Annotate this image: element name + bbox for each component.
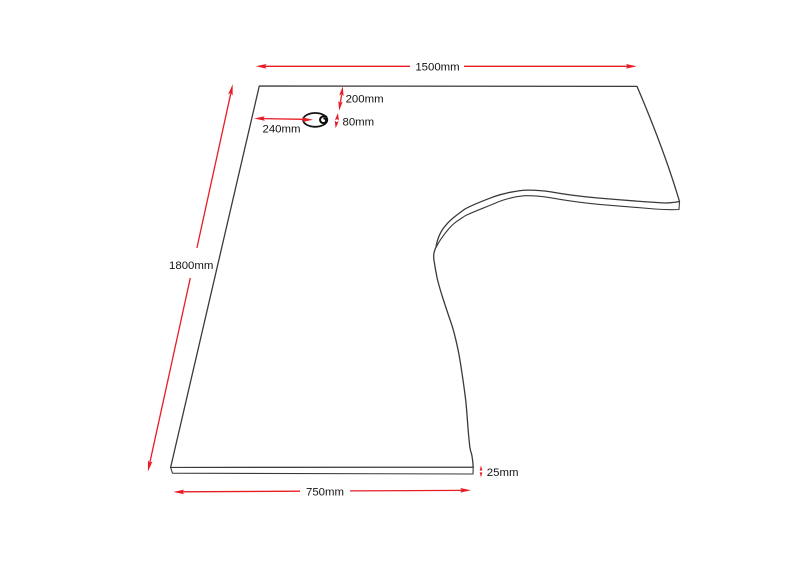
svg-text:25mm: 25mm: [487, 467, 519, 479]
svg-text:240mm: 240mm: [263, 123, 301, 135]
svg-text:80mm: 80mm: [343, 117, 375, 129]
svg-text:750mm: 750mm: [306, 487, 344, 499]
svg-text:200mm: 200mm: [346, 94, 384, 106]
svg-text:1500mm: 1500mm: [415, 61, 459, 73]
svg-text:1800mm: 1800mm: [169, 260, 213, 272]
